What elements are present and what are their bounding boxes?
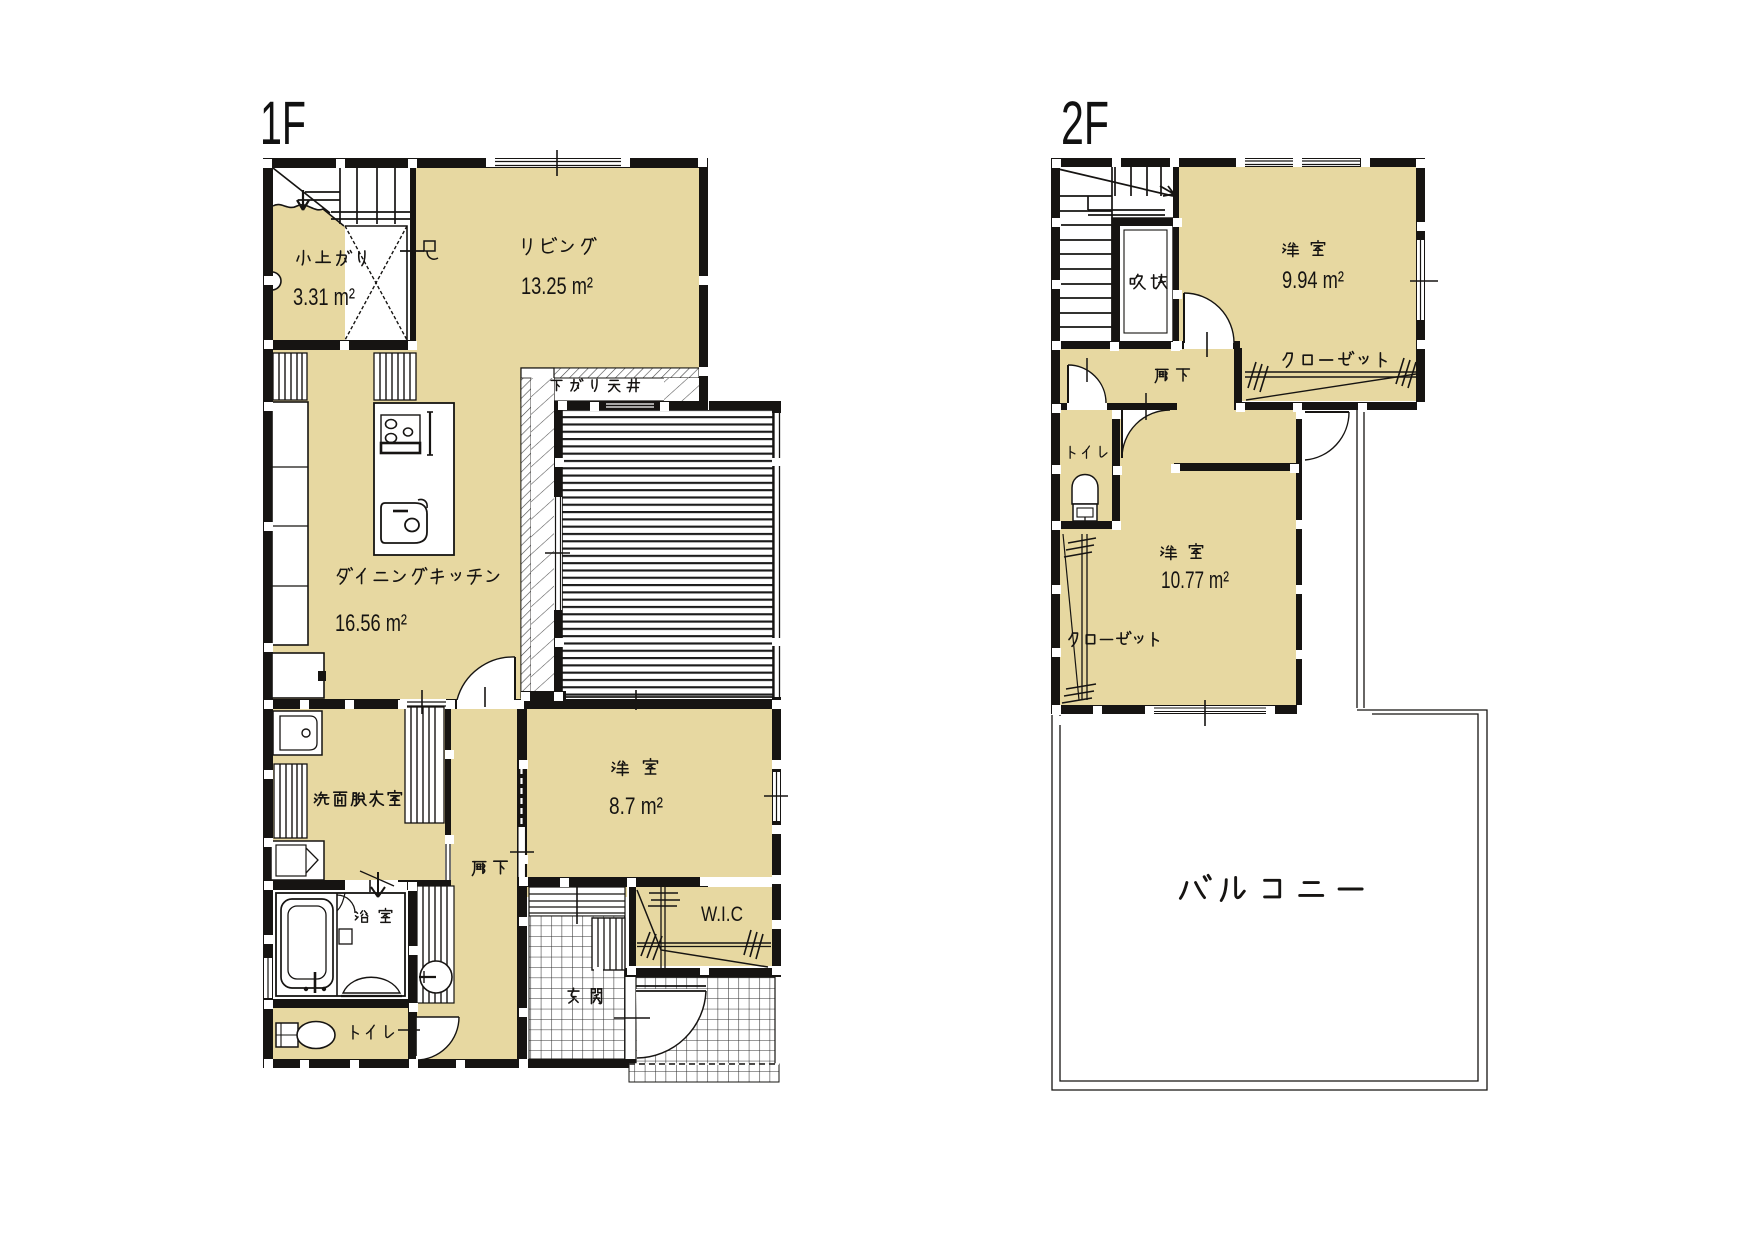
svg-text:16.56 m²: 16.56 m² bbox=[335, 610, 407, 637]
svg-text:W.I.C: W.I.C bbox=[701, 903, 743, 926]
svg-text:1F: 1F bbox=[260, 89, 306, 157]
svg-text:9.94 m²: 9.94 m² bbox=[1282, 267, 1344, 294]
svg-text:10.77 m²: 10.77 m² bbox=[1161, 567, 1229, 594]
svg-text:2F: 2F bbox=[1061, 89, 1109, 157]
svg-text:8.7 m²: 8.7 m² bbox=[609, 793, 663, 820]
svg-text:13.25 m²: 13.25 m² bbox=[521, 273, 593, 300]
svg-text:3.31 m²: 3.31 m² bbox=[293, 284, 355, 311]
